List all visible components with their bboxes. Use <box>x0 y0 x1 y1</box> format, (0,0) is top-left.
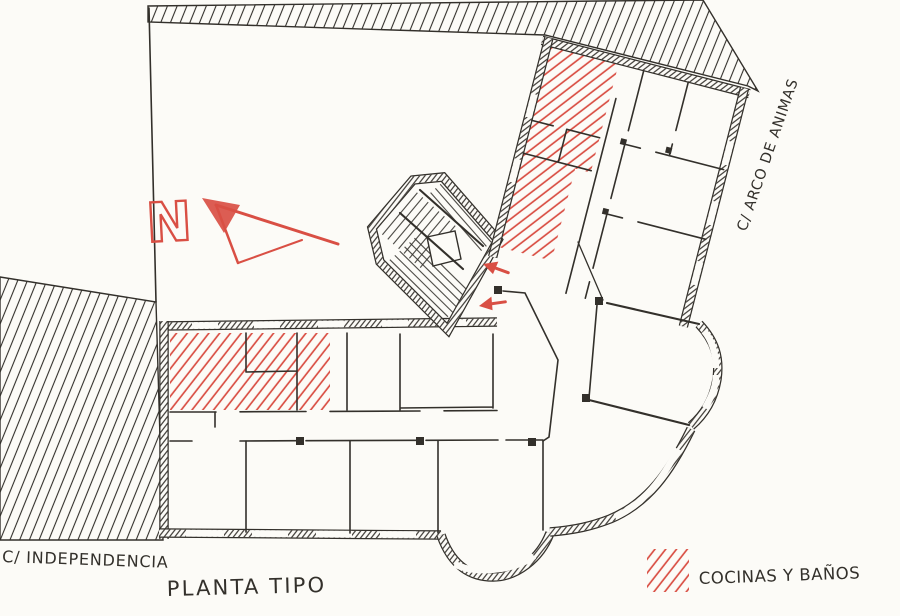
adjacent-property-hatch <box>0 277 163 540</box>
stair-landing <box>427 231 461 266</box>
north-arrow-icon: N <box>145 190 338 263</box>
north-label: N <box>145 190 193 255</box>
floor-plan-sheet: N C/ INDEPENDENCIA PLANTA TIPO C/ ARCO D… <box>0 0 900 616</box>
page-title: PLANTA TIPO <box>167 573 327 601</box>
entry-arrow-icon <box>478 293 507 315</box>
right-wing <box>482 37 750 328</box>
courtyard-boundary-line <box>149 8 156 302</box>
street-label-independencia: C/ INDEPENDENCIA <box>2 547 169 572</box>
entrance-facade-line <box>503 291 558 441</box>
legend: COCINAS Y BAÑOS <box>647 549 861 592</box>
site-boundary-top <box>148 0 758 91</box>
floor-plan-canvas: N C/ INDEPENDENCIA PLANTA TIPO C/ ARCO D… <box>0 0 900 616</box>
legend-swatch <box>647 549 689 592</box>
legend-label: COCINAS Y BAÑOS <box>698 563 860 588</box>
stair-core <box>372 177 498 330</box>
